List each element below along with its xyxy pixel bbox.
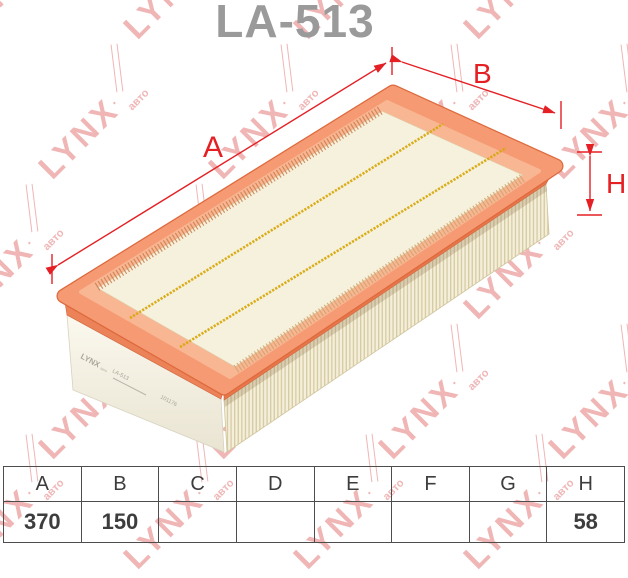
table-value-row: 370 150 58 (4, 502, 625, 543)
dimension-b-label: B (473, 58, 492, 89)
table-value-cell (392, 502, 470, 543)
table-value-cell: 150 (81, 502, 159, 543)
air-filter-drawing: LYNX авто LA-513 101176 A B H (0, 0, 628, 462)
table-value-cell (159, 502, 237, 543)
table-header-cell: E (314, 467, 392, 502)
table-header-cell: G (469, 467, 547, 502)
table-header-row: A B C D E F G H (4, 467, 625, 502)
table-value-cell: 58 (547, 502, 625, 543)
dimension-a-label: A (203, 131, 223, 164)
table-value-cell (236, 502, 314, 543)
table-header-cell: D (236, 467, 314, 502)
table-value-cell (314, 502, 392, 543)
table-header-cell: B (81, 467, 159, 502)
dimensions-table: A B C D E F G H 370 150 58 (3, 466, 625, 543)
dimension-h-label: H (606, 168, 626, 199)
table-header-cell: H (547, 467, 625, 502)
part-number-title: LA-513 (145, 0, 445, 48)
table-header-cell: A (4, 467, 82, 502)
table-header-cell: C (159, 467, 237, 502)
table-value-cell: 370 (4, 502, 82, 543)
table-header-cell: F (392, 467, 470, 502)
table-value-cell (469, 502, 547, 543)
catalog-card: { "title": "LA-513", "watermark": { "bra… (0, 0, 628, 545)
dimension-h (577, 152, 602, 215)
